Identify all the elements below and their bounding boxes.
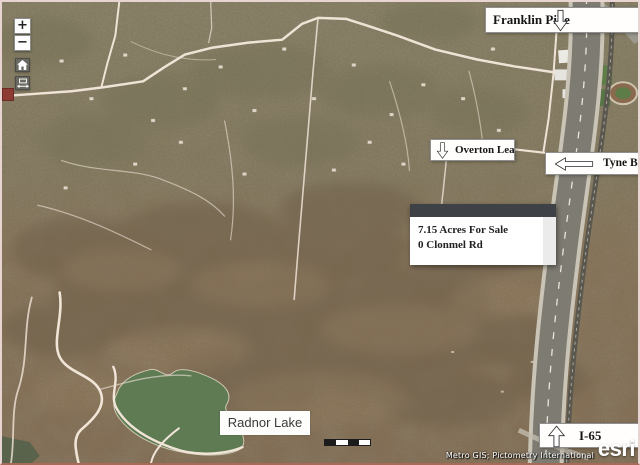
callout-scroll-area[interactable]	[543, 217, 556, 265]
scale-bar-segment	[359, 440, 370, 445]
callout-line1: 7.15 Acres For Sale	[418, 223, 548, 238]
attribution-text: Metro GIS; Pictometry International	[446, 451, 594, 460]
arrow-down-icon	[436, 141, 449, 160]
callout-header	[410, 204, 556, 217]
scale-bar-segment	[336, 440, 347, 445]
radnor-lake-label: Radnor Lake	[220, 411, 310, 435]
extent-arrows-icon	[17, 78, 29, 89]
zoom-in-button[interactable]: +	[14, 18, 31, 34]
callout-line2: 0 Clonmel Rd	[418, 238, 548, 253]
map-viewport[interactable]: + − Franklin Pike Overton Lea Tyne Blvd	[0, 0, 640, 465]
extent-button[interactable]	[15, 76, 30, 90]
home-icon	[17, 60, 28, 70]
franklin-pike-label: Franklin Pike	[485, 7, 640, 33]
property-callout: 7.15 Acres For Sale 0 Clonmel Rd	[410, 204, 556, 265]
overton-lea-text: Overton Lea	[455, 144, 515, 156]
arrow-down-icon	[552, 9, 569, 32]
overton-lea-label: Overton Lea	[430, 139, 515, 161]
scale-bar-segment	[325, 440, 336, 445]
scale-bar-segment	[348, 440, 359, 445]
tyne-blvd-label: Tyne Blvd	[545, 152, 640, 175]
zoom-out-button[interactable]: −	[14, 35, 31, 51]
scale-bar	[324, 439, 371, 446]
esri-logo[interactable]: esri	[598, 436, 635, 462]
arrow-up-icon	[547, 425, 566, 448]
home-button[interactable]	[15, 58, 30, 72]
map-tool-button[interactable]	[2, 88, 14, 101]
arrow-left-icon	[550, 157, 598, 171]
callout-body: 7.15 Acres For Sale 0 Clonmel Rd	[410, 217, 556, 265]
tyne-blvd-text: Tyne Blvd	[603, 157, 640, 169]
